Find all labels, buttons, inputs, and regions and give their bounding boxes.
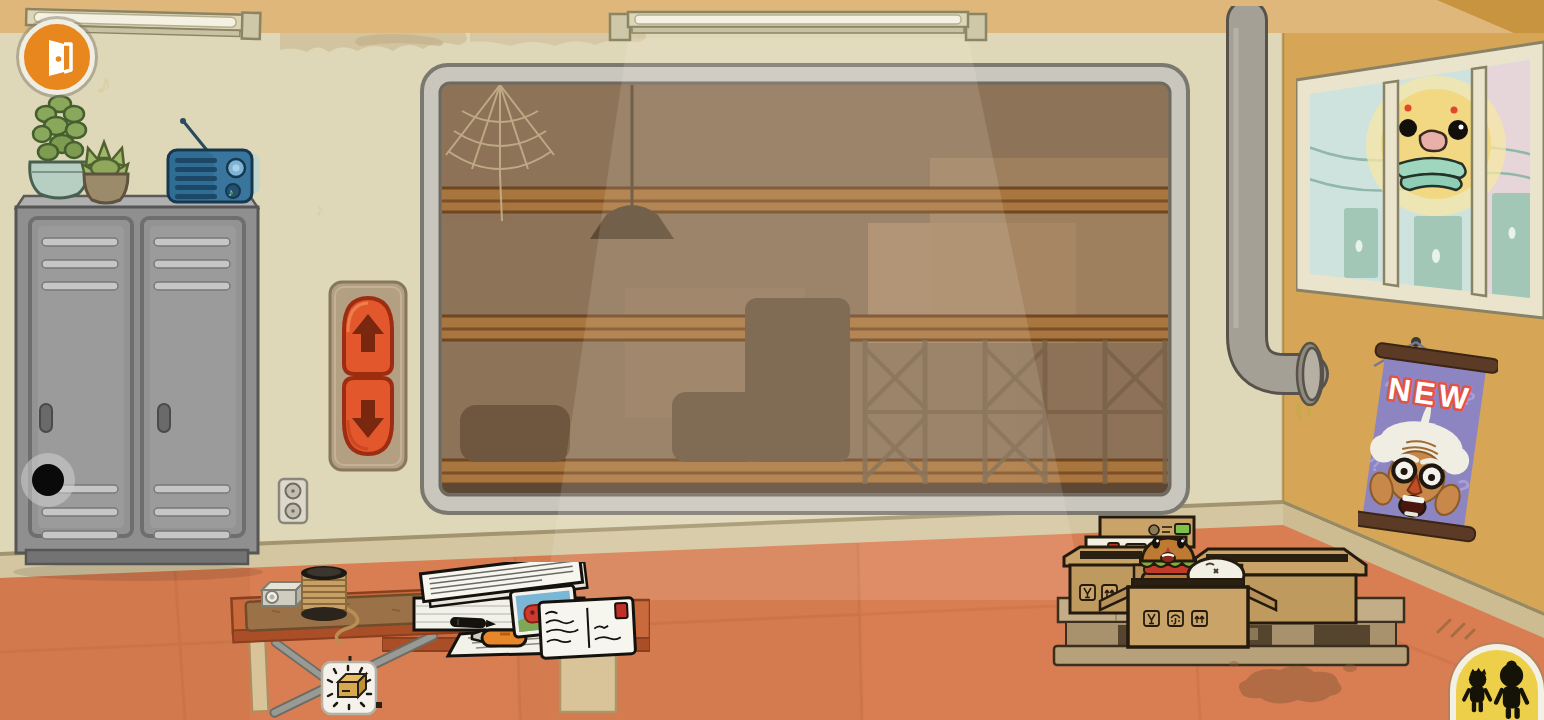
locker-handle-left[interactable]: [40, 404, 52, 432]
shelf-control-panel: [328, 280, 408, 472]
wall-stains: [280, 33, 646, 52]
light-fixture-center: [608, 6, 990, 48]
plant-pot: [84, 174, 128, 203]
characters-icon: [1456, 658, 1538, 720]
floor-tile-dark: [0, 568, 250, 720]
locker-handle-right[interactable]: [158, 404, 170, 432]
stamp-icon: [615, 603, 628, 619]
green-label: [1175, 524, 1190, 534]
shelf-down-button[interactable]: [344, 378, 392, 454]
postcards[interactable]: [506, 584, 650, 664]
box-open-front[interactable]: [1100, 579, 1276, 647]
bird-beak-icon: [1420, 131, 1446, 151]
power-outlet: [276, 476, 312, 526]
radio-antenna-icon: [180, 118, 186, 124]
twine-spool[interactable]: [288, 562, 366, 648]
package-box-icon: [338, 674, 366, 697]
floor-stain: [1226, 652, 1376, 708]
radio[interactable]: ♪: [160, 112, 260, 204]
floor-scuffs: [1428, 608, 1488, 648]
succulent-plant[interactable]: [76, 134, 134, 206]
svg-text:♪: ♪: [228, 186, 234, 198]
package-sign: [316, 656, 384, 718]
pipe-drip-stain: [1296, 404, 1312, 422]
street-window: [1296, 28, 1544, 320]
door-exit-icon: [35, 34, 79, 80]
lockers[interactable]: [12, 194, 262, 570]
exit-button[interactable]: [19, 19, 95, 95]
svg-text:♪: ♪: [314, 200, 325, 220]
postcard-written[interactable]: [539, 598, 636, 659]
locker-door-left[interactable]: [21, 218, 132, 539]
storeroom-interior: [440, 83, 1170, 495]
locker-hole-sticker: [32, 464, 64, 496]
shipping-boxes: [1048, 505, 1380, 657]
storeroom-window: [420, 63, 1190, 515]
storage-room-scene: ♪ ♪: [0, 0, 1544, 720]
locker-door-right[interactable]: [142, 218, 244, 539]
shelf-up-button[interactable]: [344, 298, 392, 374]
